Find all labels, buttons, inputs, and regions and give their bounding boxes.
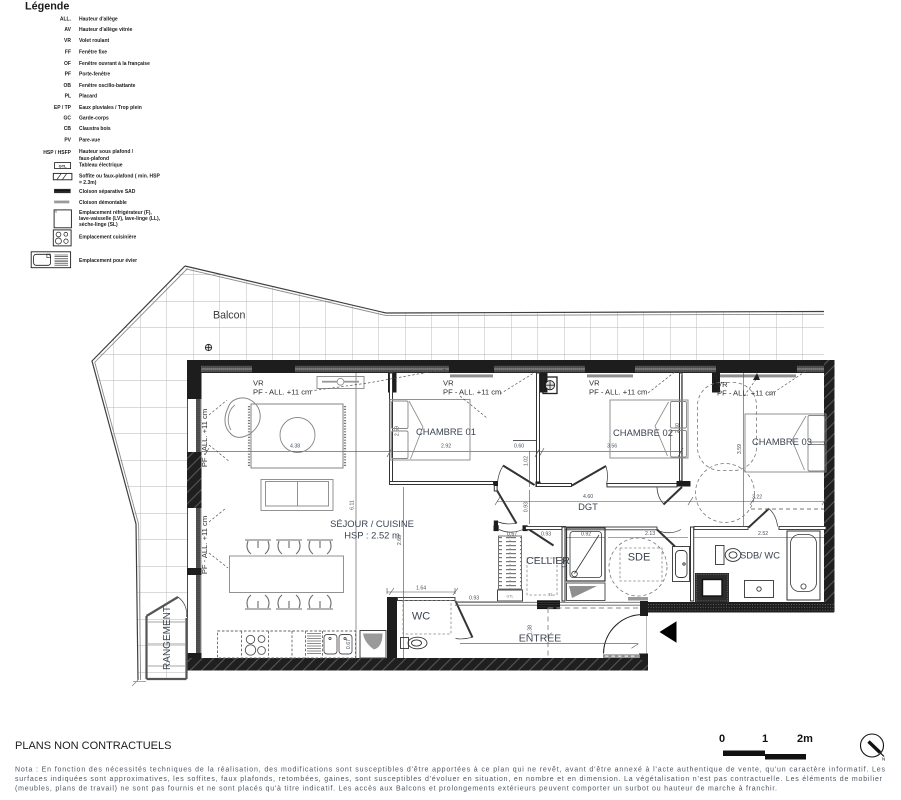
svg-text:PL: PL (65, 94, 71, 100)
svg-text:3.56: 3.56 (607, 444, 617, 450)
svg-text:CHAMBRE 02: CHAMBRE 02 (613, 427, 673, 438)
svg-text:PF - ALL. +11 cm: PF - ALL. +11 cm (589, 388, 647, 397)
svg-text:Hauteur sous plafond /: Hauteur sous plafond / (79, 149, 134, 155)
svg-text:sèche-linge (SL): sèche-linge (SL) (79, 222, 118, 228)
svg-text:surfaces indiquées sont approx: surfaces indiquées sont approximatives, … (15, 776, 883, 783)
svg-text:Cloison séparative SAD: Cloison séparative SAD (79, 189, 136, 195)
svg-text:2m: 2m (797, 733, 813, 745)
svg-text:0.60: 0.60 (514, 444, 524, 450)
svg-text:FF: FF (65, 50, 71, 56)
svg-text:1.02: 1.02 (524, 456, 530, 466)
svg-text:4.60: 4.60 (583, 494, 593, 500)
svg-text:0.67: 0.67 (346, 639, 352, 649)
svg-text:Fenêtre ouvrant à la française: Fenêtre ouvrant à la française (79, 61, 150, 67)
svg-text:0.93: 0.93 (541, 532, 551, 538)
svg-text:Fenêtre oscillo-battante: Fenêtre oscillo-battante (79, 83, 136, 89)
svg-text:1.64: 1.64 (416, 586, 426, 592)
svg-text:VR: VR (443, 379, 454, 388)
svg-text:GC: GC (64, 116, 72, 122)
svg-text:ENTRÉE: ENTRÉE (519, 632, 562, 645)
svg-text:PF - ALL. +11 cm: PF - ALL. +11 cm (717, 389, 775, 398)
svg-text:Balcon: Balcon (213, 310, 245, 322)
svg-text:lave-vaisselle (LV), lave-ling: lave-vaisselle (LV), lave-linge (LL), (79, 216, 161, 222)
svg-text:OB: OB (64, 83, 72, 89)
svg-text:2.13: 2.13 (645, 531, 655, 537)
svg-text:HSP / HSFP: HSP / HSFP (43, 150, 71, 156)
svg-text:AV: AV (64, 27, 71, 33)
svg-text:0.92: 0.92 (581, 532, 591, 538)
svg-text:0.93: 0.93 (469, 596, 479, 602)
svg-text:PF: PF (65, 72, 71, 78)
svg-text:DGT: DGT (578, 501, 598, 512)
svg-text:Hauteur d'allège vitrée: Hauteur d'allège vitrée (79, 27, 133, 33)
svg-text:WC: WC (412, 611, 430, 623)
svg-text:0.93: 0.93 (524, 502, 530, 512)
svg-text:PLANS NON CONTRACTUELS: PLANS NON CONTRACTUELS (15, 740, 171, 752)
svg-text:faux-plafond: faux-plafond (79, 156, 109, 162)
svg-text:Soffite ou faux-plafond ( min.: Soffite ou faux-plafond ( min. HSP (79, 174, 160, 180)
svg-text:Emplacement cuisinière: Emplacement cuisinière (79, 235, 136, 241)
svg-text:3.59: 3.59 (737, 444, 743, 454)
svg-text:SÉJOUR / CUISINE: SÉJOUR / CUISINE (330, 518, 414, 529)
svg-text:PF - ALL. +11 cm: PF - ALL. +11 cm (200, 516, 209, 574)
svg-text:PF - ALL. +11 cm: PF - ALL. +11 cm (253, 388, 311, 397)
svg-text:VR: VR (64, 38, 71, 44)
svg-text:2.52: 2.52 (758, 531, 768, 537)
svg-text:Hauteur d'allège: Hauteur d'allège (79, 17, 118, 23)
svg-text:Tableau électrique: Tableau électrique (79, 163, 123, 169)
svg-text:RANGEMENT: RANGEMENT (162, 606, 173, 670)
svg-text:CELLIER: CELLIER (526, 555, 570, 567)
svg-text:T1: T1 (548, 592, 554, 597)
svg-text:0: 0 (719, 733, 725, 745)
svg-text:4.38: 4.38 (290, 444, 300, 450)
svg-text:CHAMBRE 03: CHAMBRE 03 (752, 436, 812, 447)
svg-text:Porte-fenêtre: Porte-fenêtre (79, 72, 110, 78)
svg-text:PV: PV (64, 138, 71, 144)
svg-text:Pare-vue: Pare-vue (79, 138, 100, 144)
svg-text:(meubles, plans de travail) ne: (meubles, plans de travail) ne sont pas … (15, 786, 777, 793)
svg-text:Claustra bois: Claustra bois (79, 126, 111, 132)
svg-text:VR: VR (589, 379, 600, 388)
svg-text:CB: CB (64, 126, 72, 132)
svg-text:GTL: GTL (507, 595, 514, 599)
svg-text:PF - ALL. +11 cm: PF - ALL. +11 cm (443, 388, 501, 397)
svg-text:Volet roulant: Volet roulant (79, 38, 110, 44)
svg-text:SDB/ WC: SDB/ WC (740, 550, 780, 561)
svg-text:N: N (882, 757, 885, 762)
svg-text:Garde-corps: Garde-corps (79, 116, 109, 122)
svg-text:SDE: SDE (628, 552, 651, 564)
svg-text:Emplacement pour évier: Emplacement pour évier (79, 258, 137, 264)
svg-text:6.11: 6.11 (350, 500, 356, 510)
svg-text:2.92: 2.92 (441, 444, 451, 450)
svg-text:VR: VR (253, 379, 264, 388)
svg-text:CHAMBRE 01: CHAMBRE 01 (416, 426, 476, 437)
svg-text:HSP : 2.52 m: HSP : 2.52 m (344, 530, 400, 541)
svg-text:= 2.3m): = 2.3m) (79, 180, 97, 186)
svg-text:ALL.: ALL. (60, 17, 72, 23)
svg-text:Emplacement réfrigérateur (F),: Emplacement réfrigérateur (F), (79, 210, 152, 216)
svg-text:Placard: Placard (79, 94, 97, 100)
svg-text:1: 1 (762, 733, 768, 745)
svg-text:Légende: Légende (25, 1, 69, 13)
svg-text:Eaux pluviales / Trop plein: Eaux pluviales / Trop plein (79, 105, 142, 111)
svg-text:PF - ALL. +11 cm: PF - ALL. +11 cm (200, 409, 209, 467)
svg-text:Nota : En fonction des nécessi: Nota : En fonction des nécessités techni… (15, 767, 885, 774)
svg-text:Fenêtre fixe: Fenêtre fixe (79, 50, 107, 56)
svg-text:EP / TP: EP / TP (54, 105, 72, 111)
svg-text:GTL: GTL (59, 163, 68, 168)
svg-text:Cloison démontable: Cloison démontable (79, 200, 127, 206)
svg-text:OF: OF (64, 61, 71, 67)
